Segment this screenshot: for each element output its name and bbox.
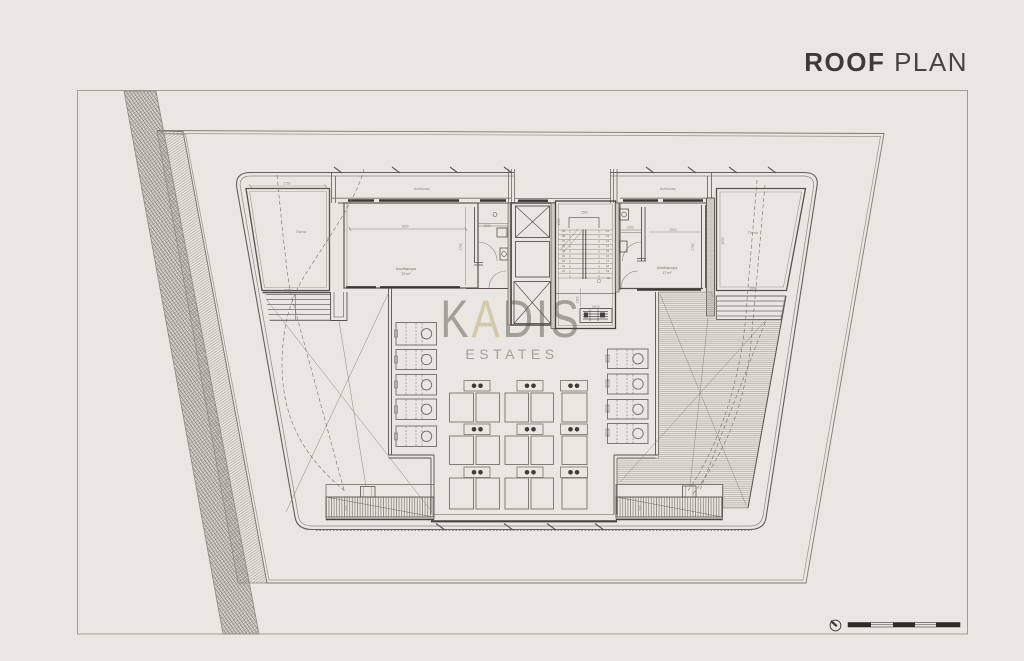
svg-text:Πατιο: Πατιο bbox=[748, 230, 759, 235]
svg-text:02: 02 bbox=[562, 264, 566, 268]
svg-text:07: 07 bbox=[562, 239, 566, 243]
svg-text:01: 01 bbox=[562, 269, 566, 273]
svg-text:1800: 1800 bbox=[483, 224, 490, 228]
svg-text:15: 15 bbox=[606, 249, 610, 253]
svg-text:16: 16 bbox=[606, 254, 610, 258]
svg-text:11: 11 bbox=[606, 229, 609, 233]
svg-text:06: 06 bbox=[562, 244, 566, 248]
svg-text:Ανθώνας: Ανθώνας bbox=[414, 186, 430, 191]
svg-text:ESTATES: ESTATES bbox=[465, 346, 558, 362]
svg-text:33 m²: 33 m² bbox=[401, 272, 411, 276]
svg-text:08: 08 bbox=[562, 234, 566, 238]
svg-text:Ανθώνας: Ανθώνας bbox=[660, 186, 676, 191]
svg-text:17: 17 bbox=[606, 259, 610, 263]
svg-text:2500: 2500 bbox=[669, 228, 676, 232]
svg-text:2500: 2500 bbox=[581, 211, 588, 215]
svg-text:Αποθήκευμα: Αποθήκευμα bbox=[396, 267, 416, 271]
svg-text:13: 13 bbox=[606, 239, 610, 243]
svg-text:3850: 3850 bbox=[401, 225, 408, 229]
svg-text:09: 09 bbox=[562, 229, 566, 233]
svg-text:300: 300 bbox=[638, 505, 642, 510]
svg-text:19: 19 bbox=[606, 269, 610, 273]
svg-text:Πατιο: Πατιο bbox=[296, 229, 307, 234]
svg-text:20: 20 bbox=[607, 276, 611, 280]
svg-text:4000: 4000 bbox=[721, 237, 725, 244]
svg-text:12: 12 bbox=[606, 234, 610, 238]
svg-text:05: 05 bbox=[562, 249, 566, 253]
svg-text:17 m²: 17 m² bbox=[662, 271, 672, 275]
svg-text:1250: 1250 bbox=[626, 226, 633, 230]
svg-text:ΑΝΕΛΚ: ΑΝΕΛΚ bbox=[592, 306, 601, 309]
svg-text:2100: 2100 bbox=[576, 296, 580, 303]
svg-text:1300: 1300 bbox=[557, 218, 561, 225]
svg-text:18: 18 bbox=[606, 264, 610, 268]
svg-text:2950: 2950 bbox=[284, 289, 291, 293]
svg-text:Αποθήκευμα: Αποθήκευμα bbox=[657, 266, 677, 270]
svg-text:14: 14 bbox=[606, 244, 610, 248]
svg-text:04: 04 bbox=[562, 254, 566, 258]
svg-text:3750: 3750 bbox=[459, 243, 463, 250]
svg-text:2700: 2700 bbox=[691, 243, 695, 250]
svg-text:300: 300 bbox=[344, 505, 348, 510]
svg-text:03: 03 bbox=[562, 259, 566, 263]
svg-text:ROOF PLAN: ROOF PLAN bbox=[804, 47, 968, 77]
svg-text:3750: 3750 bbox=[283, 182, 290, 186]
